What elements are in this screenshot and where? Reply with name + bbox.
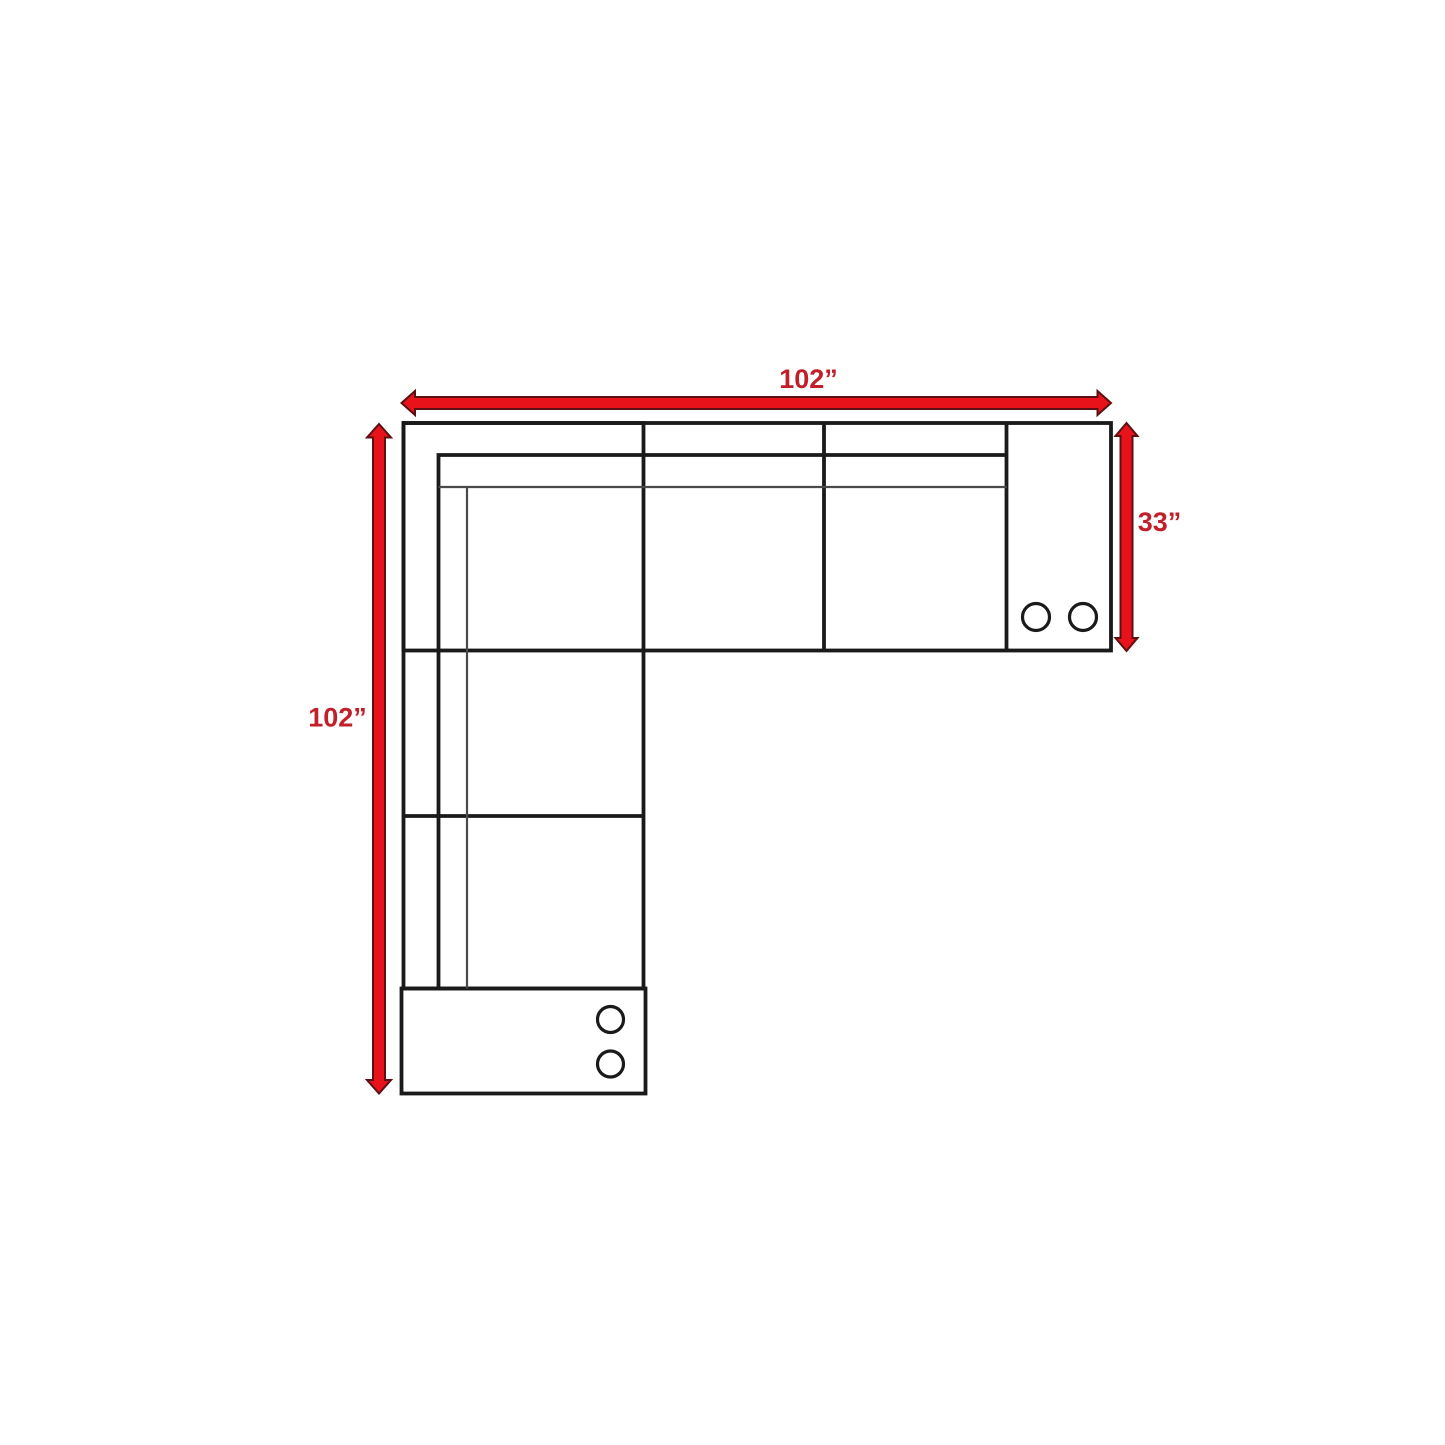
svg-text:102”: 102” [779,364,838,394]
svg-text:33”: 33” [1138,507,1182,537]
svg-text:102”: 102” [308,703,367,733]
